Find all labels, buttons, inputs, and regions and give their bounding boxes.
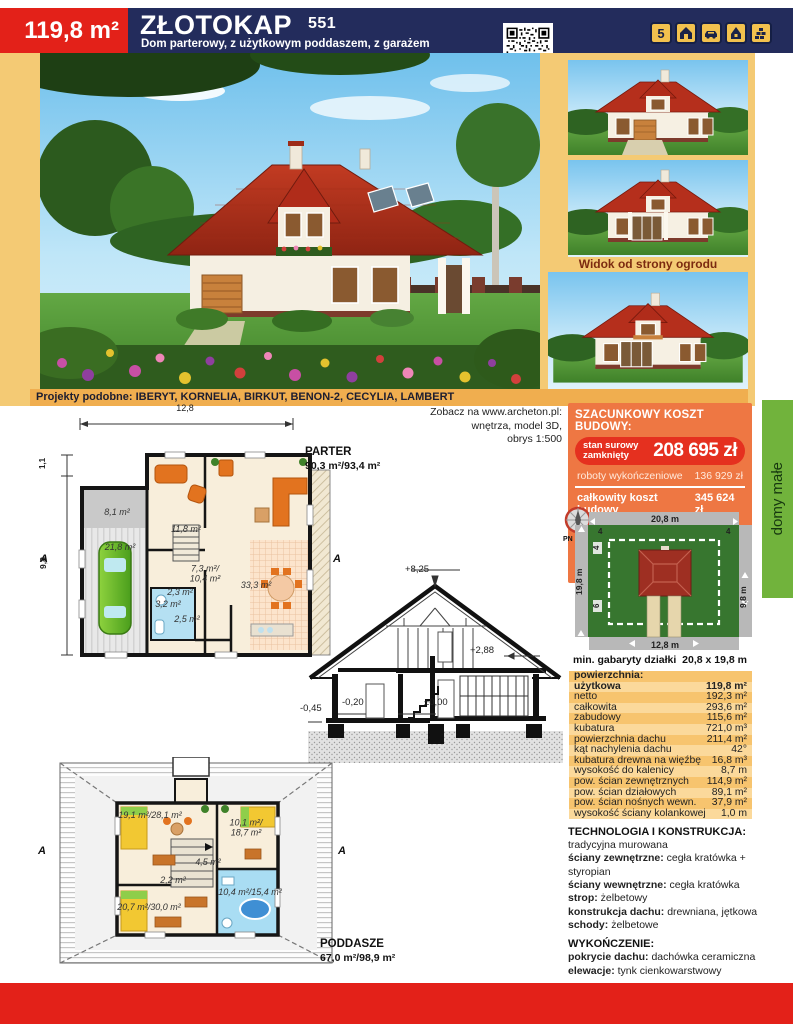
plot-offset-top-left: 4: [598, 527, 602, 536]
compass-label: PN: [563, 536, 573, 543]
poddasze-section-mark-left: A: [38, 845, 46, 857]
parter-title: PARTER 90,3 m²/93,4 m²: [305, 446, 380, 472]
room-label: 21,8 m²: [105, 542, 136, 552]
similar-projects-label: Projekty podobne:: [36, 391, 133, 403]
project-number: 551: [308, 15, 336, 32]
shell-cost-pill: stan surowy zamknięty 208 695 zł: [575, 437, 745, 465]
plot-min-size: min. gabaryty działki 20,8 x 19,8 m: [568, 654, 752, 666]
cost-divider: [575, 486, 745, 488]
shell-cost-value: 208 695 zł: [653, 440, 737, 462]
area-row: pow. ścian zewnętrznych114,9 m²: [569, 777, 752, 788]
front-view-photo: [568, 60, 748, 155]
plot-offset-left-bottom: 6: [592, 598, 601, 614]
plot-dim-left: 19,8 m: [574, 552, 584, 612]
level-label: +2,88: [470, 645, 494, 656]
parter-section-mark-left: A: [40, 553, 48, 565]
project-name: ZŁOTOKAP: [140, 10, 292, 40]
plot-offset-left-top: 4: [592, 540, 601, 556]
web-note-line3: obrys 1:500: [370, 433, 562, 447]
area-badge: 119,8 m²: [0, 8, 128, 53]
plot-dim-bottom: 12,8 m: [630, 640, 700, 650]
room-label: 10,1 m²/ 18,7 m²: [229, 818, 262, 839]
room-label: 2,2 m²: [160, 875, 186, 885]
construction-item: tradycyjna murowana: [568, 839, 768, 852]
catalog-page: 119,8 m² ZŁOTOKAP551 Dom parterowy, z uż…: [0, 0, 793, 1024]
areas-table: powierzchnia:użytkowa119,8 m²netto192,3 …: [569, 671, 752, 819]
parter-dim-small: 1,1: [38, 452, 47, 474]
room-label: 19,1 m²/28,1 m²: [118, 810, 182, 820]
bricks-icon: [750, 22, 772, 44]
area-row: powierzchnia:: [569, 671, 752, 682]
area-row: wysokość ściany kolankowej1,0 m: [569, 809, 752, 820]
cross-section-drawing: [308, 556, 563, 770]
room-label: 33,3 m²: [241, 580, 272, 590]
area-badge-text: 119,8 m²: [24, 17, 119, 45]
similar-projects-names: IBERYT, KORNELIA, BIRKUT, BENON-2, CECYL…: [136, 391, 455, 403]
room-label: 11,8 m²: [171, 524, 201, 534]
room-count: 5: [657, 26, 664, 41]
parter-dim-width: 12,8: [150, 403, 220, 413]
plot-dim-right: 9,8 m: [738, 570, 748, 625]
plot-offset-top-right: 4: [726, 527, 730, 536]
poddasze-section-mark-right: A: [338, 845, 346, 857]
finishing-cost-row: roboty wykończeniowe136 929 zł: [575, 468, 745, 484]
room-label: 3,2 m²: [155, 599, 181, 609]
level-label: +8,25: [405, 564, 429, 575]
plot-dim-top: 20,8 m: [630, 514, 700, 524]
car-icon: [700, 22, 722, 44]
garden-view-photo: [568, 160, 748, 257]
main-house-photo: [40, 53, 540, 390]
room-label: 7,3 m²/ 10,4 m²: [190, 564, 221, 585]
construction-block: TECHNOLOGIA I KONSTRUKCJA:tradycyjna mur…: [568, 820, 768, 1010]
web-note-line2: wnętrza, model 3D,: [370, 420, 562, 434]
garden-view-caption: Widok od strony ogrodu: [548, 257, 748, 271]
attic-house-icon: [725, 22, 747, 44]
construction-section-title: TECHNOLOGIA I KONSTRUKCJA:: [568, 826, 768, 838]
room-label: 20,7 m²/30,0 m²: [117, 902, 181, 912]
construction-item: schody: żelbetowe: [568, 919, 768, 932]
room-label: 8,1 m²: [104, 507, 130, 517]
page-title: ZŁOTOKAP551: [140, 10, 336, 41]
room-label: 4,5 m²: [195, 857, 221, 867]
construction-item: elewacje: tynk cienkowarstwowy: [568, 965, 768, 978]
room-label: 2,5 m²: [174, 614, 200, 624]
construction-item: ściany zewnętrzne: cegła kratówka + styr…: [568, 852, 768, 879]
level-label: -0,45: [300, 703, 322, 714]
web-note: Zobacz na www.archeton.pl: wnętrza, mode…: [370, 406, 562, 447]
parter-plan-drawing: [55, 410, 340, 665]
construction-item: pokrycie dachu: dachówka ceramiczna: [568, 951, 768, 964]
bottom-red-bar: [0, 983, 793, 1024]
side-view-photo: [548, 272, 748, 390]
web-note-line1: Zobacz na www.archeton.pl:: [370, 406, 562, 420]
room-label: 10,4 m²/15,4 m²: [218, 887, 282, 897]
room-label: 2,3 m²: [167, 587, 193, 597]
room-count-badge: 5: [650, 22, 672, 44]
poddasze-title: PODDASZE 67,0 m²/98,9 m²: [320, 938, 395, 964]
construction-item: ściany wewnętrzne: cegła kratówka: [568, 879, 768, 892]
level-label: ±0,00: [424, 697, 448, 708]
area-row: kubatura721,0 m³: [569, 724, 752, 735]
construction-section-title: WYKOŃCZENIE:: [568, 938, 768, 950]
cost-title: SZACUNKOWY KOSZT BUDOWY:: [575, 409, 745, 433]
category-tab-label: domy małe: [769, 462, 786, 535]
house-icon: [675, 22, 697, 44]
feature-badges: 5: [650, 22, 772, 44]
page-subtitle: Dom parterowy, z użytkowym poddaszem, z …: [141, 38, 430, 50]
shell-cost-label: stan surowy zamknięty: [583, 441, 638, 462]
category-tab[interactable]: domy małe: [762, 400, 793, 598]
level-label: -0,20: [342, 697, 364, 708]
construction-item: strop: żelbetowy: [568, 892, 768, 905]
main-photo-scene: [40, 53, 540, 390]
construction-item: konstrukcja dachu: drewniana, jętkowa: [568, 906, 768, 919]
